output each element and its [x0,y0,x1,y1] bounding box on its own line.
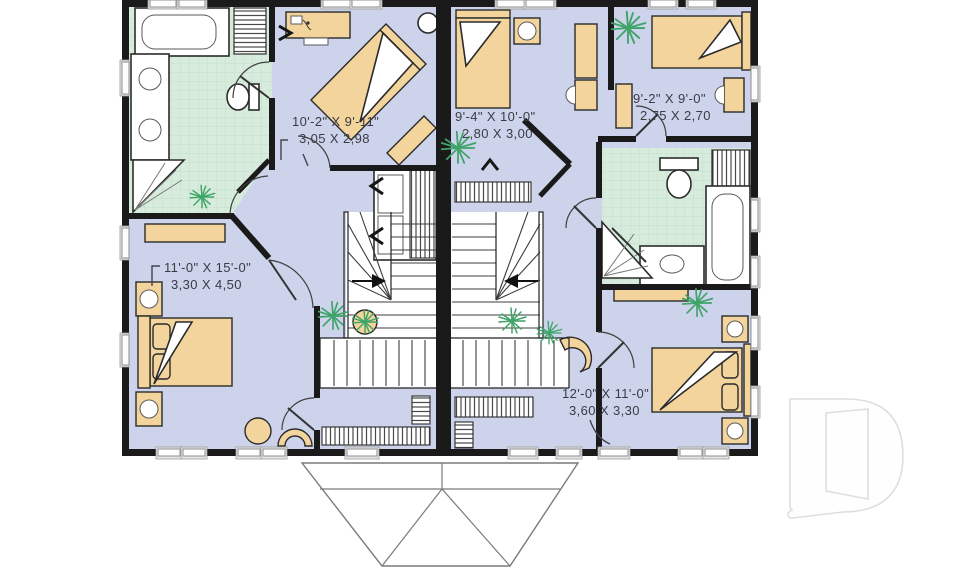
interior-wall [598,284,754,290]
closet-hatch [322,427,430,445]
dimension-imperial: 9'-2" X 9'-0" [633,91,711,108]
dimension-imperial: 12'-0" X 11'-0" [562,386,649,403]
toilet-icon [667,170,691,198]
dimension-imperial: 10'-2" X 9'-11" [292,114,379,131]
pillow-icon [722,384,738,410]
mouse-icon [306,21,309,24]
interior-wall [188,213,234,219]
dimension-metric: 2,75 X 2,70 [633,108,711,125]
tall-dresser-icon [575,24,597,78]
ottoman-icon [245,418,271,444]
left-lower-stairs [320,338,436,388]
closet-hatch [412,396,430,424]
interior-wall [330,165,436,171]
interior-wall [598,136,636,142]
sink-icon [660,255,684,273]
lamp-icon [140,290,158,308]
closet-hatch [410,170,436,258]
party-wall [436,0,451,449]
sink-icon [139,119,161,141]
toilet-tank [660,158,698,170]
lamp-icon [140,400,158,418]
desk-icon [724,78,744,112]
bathtub-basin [142,15,216,49]
bed-headboard [456,10,510,18]
bed-headboard [138,316,150,388]
linen-closet [712,150,750,188]
dimension-imperial: 11'-0" X 15'-0" [164,260,251,277]
exterior-wall-bottom [122,449,758,456]
floor-plan-canvas: 10'-2" X 9'-11" 3,05 X 2,98 9'-4" X 10'-… [0,0,960,569]
lamp-icon [727,321,743,337]
interior-wall [314,430,320,449]
dresser-icon [145,224,225,242]
interior-wall [666,136,754,142]
closet-hatch [455,422,473,448]
roof-outline [302,463,578,566]
toilet-icon [227,84,249,110]
bed-headboard [742,12,751,70]
lamp-icon [727,423,743,439]
porch-roof [302,463,578,566]
dimension-imperial: 9'-4" X 10'-0" [455,109,536,126]
closet-hatch [455,182,531,202]
desk-icon [575,80,597,110]
stool-icon [418,13,438,33]
closet-hatch [455,397,533,417]
interior-wall [608,0,614,90]
dresser-icon [616,84,632,128]
room-dimensions-bedroom-top-center: 9'-4" X 10'-0" 2,80 X 3,00 [455,109,536,143]
interior-wall [596,228,602,290]
bed-headboard [744,344,751,416]
linen-closet [234,8,266,54]
right-lower-stairs [451,338,569,388]
floor-plan-drawing [0,0,960,569]
computer-icon [291,16,302,24]
dimension-metric: 3,30 X 4,50 [164,277,251,294]
dimension-metric: 3,60 X 3,30 [562,403,649,420]
dimension-metric: 2,80 X 3,00 [455,126,536,143]
bathtub-basin [712,194,743,280]
interior-wall [269,0,275,62]
watermark-d-logo-icon [788,399,903,518]
interior-wall [126,213,190,219]
room-dimensions-master-bedroom: 11'-0" X 15'-0" 3,30 X 4,50 [164,260,251,294]
room-dimensions-bedroom-top-left: 10'-2" X 9'-11" 3,05 X 2,98 [292,114,379,148]
desk-chair [304,38,328,45]
table-lamp-icon [518,22,536,40]
dimension-metric: 3,05 X 2,98 [292,131,379,148]
interior-wall [596,290,602,332]
sink-icon [139,68,161,90]
interior-wall [314,306,320,398]
room-dimensions-bedroom-top-right: 9'-2" X 9'-0" 2,75 X 2,70 [633,91,711,125]
interior-wall [596,142,602,198]
interior-wall [269,98,275,170]
toilet-tank [249,84,259,110]
room-dimensions-bedroom-bottom-right: 12'-0" X 11'-0" 3,60 X 3,30 [562,386,649,420]
